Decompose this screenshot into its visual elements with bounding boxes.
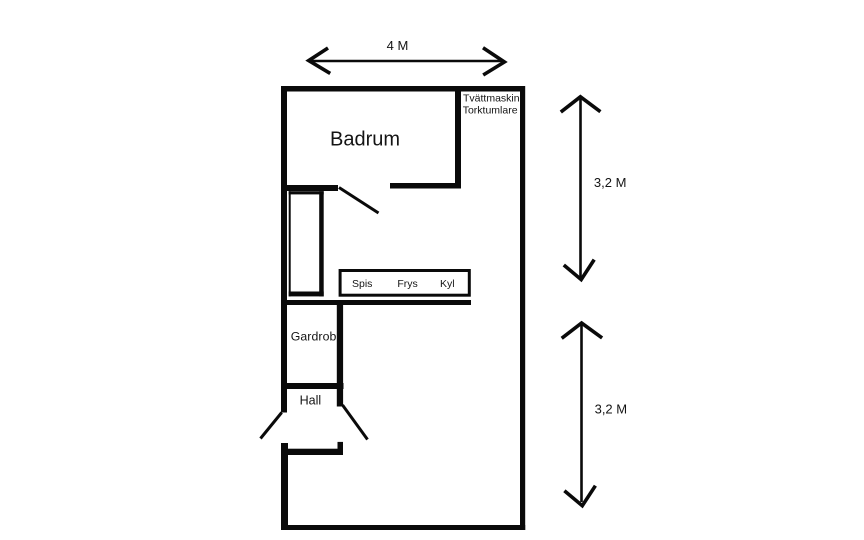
svg-text:3,2 M: 3,2 M xyxy=(595,401,628,416)
svg-text:Frys: Frys xyxy=(397,278,417,290)
svg-text:Hall: Hall xyxy=(300,393,322,407)
svg-text:Gardrob: Gardrob xyxy=(291,329,337,343)
svg-text:Badrum: Badrum xyxy=(330,129,400,151)
svg-text:Torktumlare: Torktumlare xyxy=(463,104,518,116)
svg-text:4 M: 4 M xyxy=(387,38,409,53)
svg-text:Spis: Spis xyxy=(352,278,372,290)
svg-text:3,2 M: 3,2 M xyxy=(594,175,627,190)
svg-text:Tvättmaskin: Tvättmaskin xyxy=(463,92,520,104)
svg-text:Kyl: Kyl xyxy=(440,278,455,290)
